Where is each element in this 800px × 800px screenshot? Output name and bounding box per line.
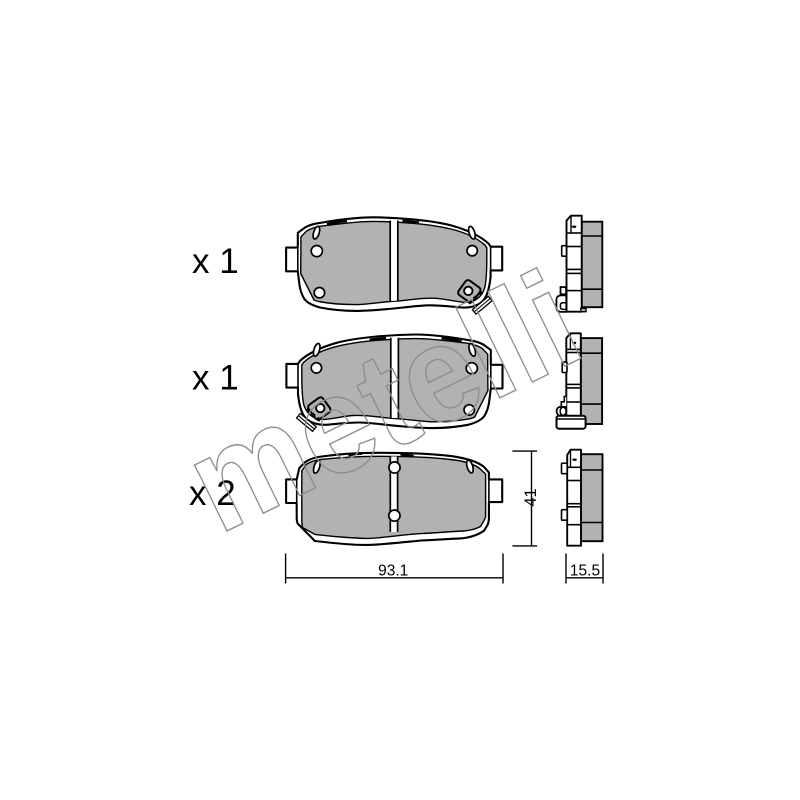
svg-text:93.1: 93.1 <box>378 563 408 580</box>
svg-text:x 1: x 1 <box>192 242 239 281</box>
svg-text:41: 41 <box>522 488 540 506</box>
svg-text:15.5: 15.5 <box>570 563 600 580</box>
